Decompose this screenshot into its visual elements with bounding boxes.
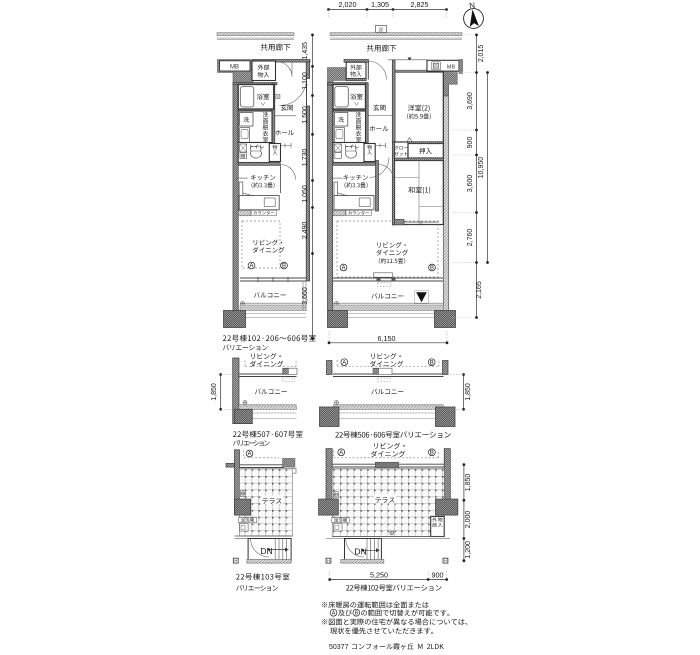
- svg-text:3,690: 3,690: [467, 92, 474, 110]
- svg-text:B: B: [430, 266, 434, 272]
- svg-text:A: A: [339, 451, 343, 457]
- svg-text:1,050: 1,050: [302, 185, 309, 203]
- svg-text:A: A: [247, 452, 251, 458]
- svg-text:2,490: 2,490: [302, 222, 309, 240]
- svg-text:2,000: 2,000: [465, 511, 472, 529]
- svg-text:MB: MB: [230, 65, 239, 71]
- svg-text:3,660: 3,660: [302, 287, 309, 305]
- svg-text:H: H: [234, 558, 237, 563]
- svg-text:2,825: 2,825: [411, 0, 429, 9]
- svg-text:1,500: 1,500: [302, 106, 309, 124]
- svg-text:B: B: [430, 360, 434, 366]
- svg-text:6,150: 6,150: [378, 334, 396, 343]
- svg-text:1,435: 1,435: [302, 42, 309, 60]
- svg-text:3,600: 3,600: [467, 175, 474, 193]
- svg-text:1,850: 1,850: [465, 383, 472, 401]
- svg-text:DN: DN: [260, 546, 272, 556]
- svg-text:50377: 50377: [329, 644, 349, 650]
- svg-text:2,020: 2,020: [339, 0, 357, 9]
- svg-text:1,305: 1,305: [371, 0, 389, 9]
- svg-text:1,850: 1,850: [211, 383, 218, 401]
- svg-text:900: 900: [432, 571, 444, 580]
- svg-text:B: B: [355, 611, 359, 617]
- svg-text:N: N: [469, 1, 476, 11]
- svg-text:H: H: [327, 558, 330, 563]
- svg-text:1,730: 1,730: [302, 149, 309, 167]
- svg-text:B: B: [430, 451, 434, 457]
- svg-text:2,760: 2,760: [467, 229, 474, 247]
- svg-text:A: A: [332, 611, 336, 617]
- svg-text:1,850: 1,850: [465, 474, 472, 492]
- svg-text:1,200: 1,200: [465, 541, 472, 559]
- svg-text:B: B: [282, 264, 286, 270]
- svg-text:2,015: 2,015: [478, 45, 485, 63]
- svg-text:A: A: [341, 266, 345, 272]
- svg-text:MB: MB: [447, 64, 456, 70]
- svg-text:A: A: [342, 360, 346, 366]
- svg-text:900: 900: [467, 137, 474, 149]
- svg-text:10,950: 10,950: [478, 157, 485, 179]
- svg-text:5,250: 5,250: [370, 571, 388, 580]
- svg-text:A: A: [249, 264, 253, 270]
- svg-text:H: H: [444, 558, 447, 563]
- svg-text:1,100: 1,100: [302, 72, 309, 90]
- svg-text:2,165: 2,165: [476, 281, 483, 299]
- svg-text:DN: DN: [354, 547, 366, 557]
